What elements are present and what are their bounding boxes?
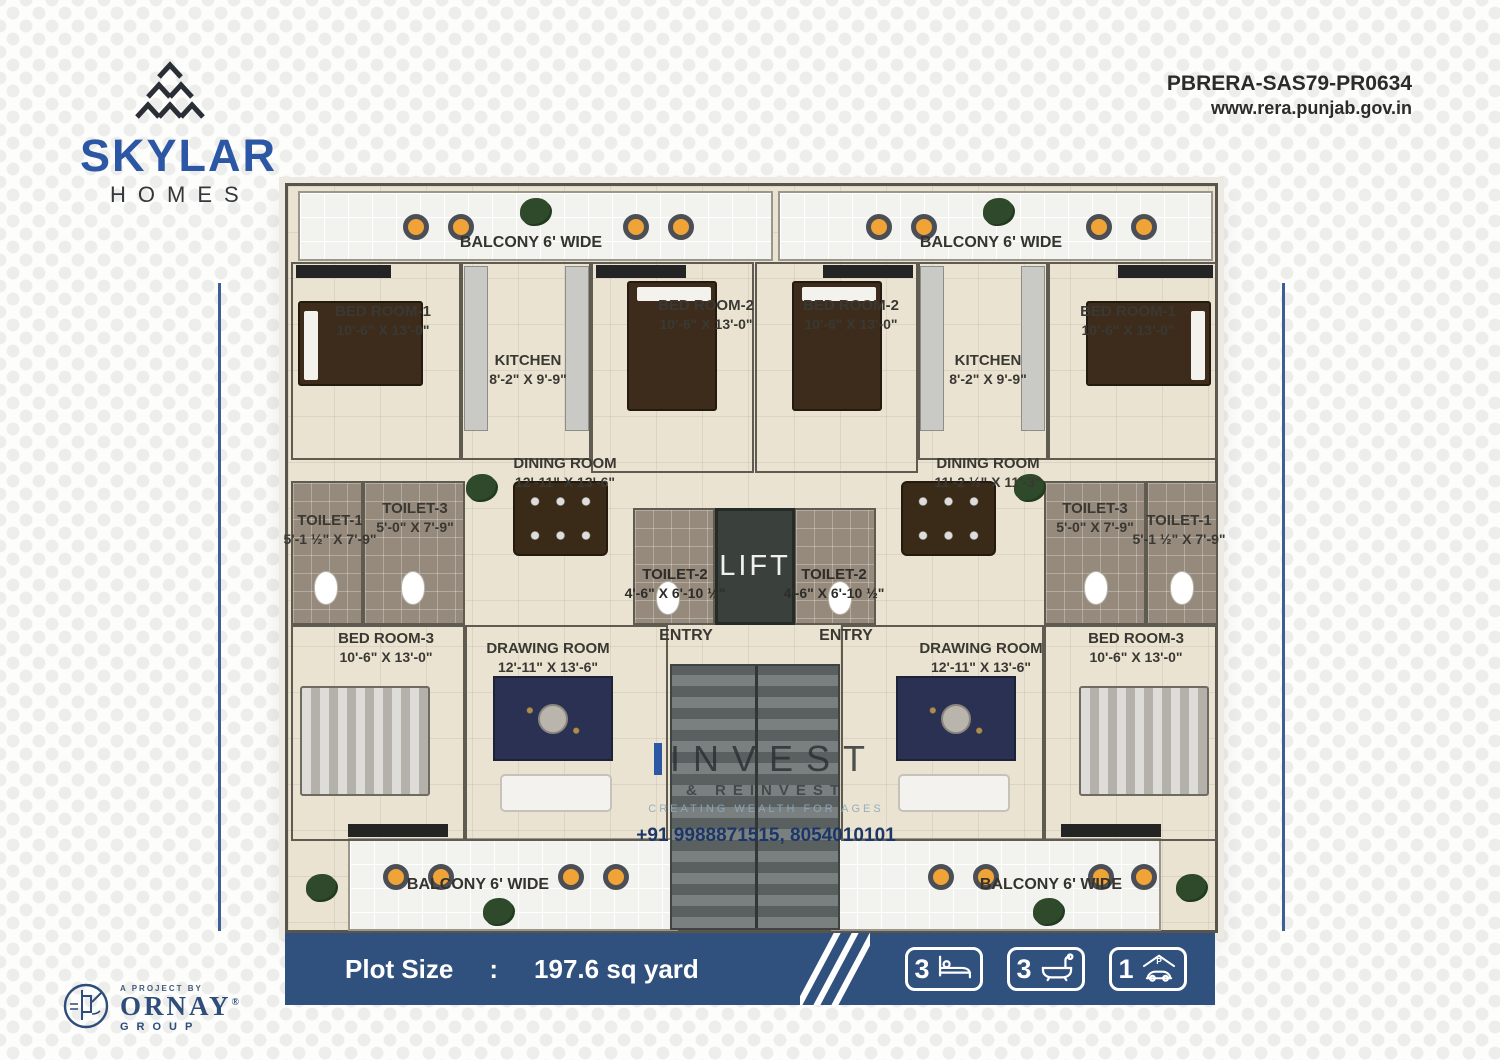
balcony-chair: [866, 214, 892, 240]
plant: [306, 874, 336, 900]
label-bedroom1-right: BED ROOM-1 10'-6" X 13'-0": [1080, 303, 1176, 339]
room-size: 12'-11" X 13'-6": [486, 659, 609, 677]
room-name: DRAWING ROOM: [919, 640, 1042, 659]
invest-watermark: INVEST & REINVEST CREATING WEALTH FOR AG…: [596, 738, 936, 847]
bedrooms-count: 3: [914, 954, 929, 985]
room-size: 5'-0" X 7'-9": [376, 519, 454, 537]
watermark-reinvest: & REINVEST: [596, 782, 936, 799]
toilet-fixture: [314, 571, 338, 605]
room-name: KITCHEN: [949, 352, 1027, 371]
toilet-fixture: [1170, 571, 1194, 605]
bed-bedroom3-left: [300, 686, 430, 796]
room-name: TOILET-1: [283, 512, 376, 531]
toilet-fixture: [1084, 571, 1108, 605]
rera-block: PBRERA-SAS79-PR0634 www.rera.punjab.gov.…: [1167, 72, 1412, 119]
balcony-chair: [558, 864, 584, 890]
entry-label-left: ENTRY: [659, 627, 713, 645]
registered-mark: ®: [232, 997, 242, 1008]
bathrooms-badge: 3: [1007, 947, 1085, 991]
label-toilet1-left: TOILET-1 5'-1 ½" X 7'-9": [283, 512, 376, 548]
label-bedroom2-left: BED ROOM-2 10'-6" X 13'-0": [658, 297, 754, 333]
label-bedroom2-right: BED ROOM-2 10'-6" X 13'-0": [803, 297, 899, 333]
room-size: 10'-6" X 13'-0": [1080, 322, 1176, 340]
plant: [1176, 874, 1206, 900]
room-name: TOILET-3: [1056, 500, 1134, 519]
watermark-phone: +91 9988871515, 8054010101: [596, 825, 936, 847]
room-name: BED ROOM-1: [335, 303, 431, 322]
room-size: 5'-1 ½" X 7'-9": [1132, 531, 1225, 549]
brand-name: SKYLAR: [80, 130, 277, 182]
plot-size-separator: :: [489, 954, 498, 985]
room-size: 10'-6" X 13'-0": [658, 316, 754, 334]
svg-text:P: P: [1156, 956, 1162, 966]
ornay-logo-icon: [62, 982, 110, 1035]
watermark-line1: INVEST: [596, 738, 936, 780]
room-name: DINING ROOM: [513, 455, 616, 474]
room-name: BED ROOM-1: [1080, 303, 1176, 322]
label-toilet2-right: TOILET-2 4'-6" X 6'-10 ½": [784, 566, 885, 602]
bathrooms-count: 3: [1016, 954, 1031, 985]
watermark-invest: INVEST: [670, 738, 878, 780]
room-name: DRAWING ROOM: [486, 640, 609, 659]
label-kitchen-left: KITCHEN 8'-2" X 9'-9": [489, 352, 567, 388]
room-name: TOILET-2: [625, 566, 726, 585]
floor-plan: LIFT: [285, 183, 1218, 933]
room-size: 10'-6" X 13'-0": [335, 322, 431, 340]
balcony-label-bottom-right: BALCONY 6' WIDE: [980, 876, 1122, 894]
parking-count: 1: [1118, 954, 1133, 985]
ornay-block: A PROJECT BY ORNAY® GROUP: [62, 982, 242, 1035]
balcony-chair: [603, 864, 629, 890]
kitchen-counter: [565, 266, 589, 431]
footer-bar: Plot Size : 197.6 sq yard 3: [285, 933, 1215, 1005]
room-name: BED ROOM-2: [803, 297, 899, 316]
label-bedroom3-left: BED ROOM-3 10'-6" X 13'-0": [338, 630, 434, 666]
coffee-table-left: [538, 704, 568, 734]
label-drawing-right: DRAWING ROOM 12'-11" X 13'-6": [919, 640, 1042, 676]
plant: [466, 474, 496, 500]
room-size: 10'-6" X 13'-0": [1088, 649, 1184, 667]
right-accent-line: [1282, 283, 1285, 931]
room-name: KITCHEN: [489, 352, 567, 371]
watermark-bar: [654, 743, 662, 775]
wardrobe: [348, 824, 448, 837]
brand-subtitle: HOMES: [110, 182, 251, 208]
wardrobe: [1061, 824, 1161, 837]
room-name: BED ROOM-2: [658, 297, 754, 316]
label-toilet3-right: TOILET-3 5'-0" X 7'-9": [1056, 500, 1134, 536]
balcony-label-bottom-left: BALCONY 6' WIDE: [407, 876, 549, 894]
rera-website: www.rera.punjab.gov.in: [1167, 98, 1412, 119]
ornay-name-text: ORNAY: [120, 991, 232, 1021]
room-name: TOILET-1: [1132, 512, 1225, 531]
room-size: 10'-6" X 13'-0": [803, 316, 899, 334]
balcony-chair: [383, 864, 409, 890]
room-size: 12'-11" X 13'-6": [513, 474, 616, 492]
label-kitchen-right: KITCHEN 8'-2" X 9'-9": [949, 352, 1027, 388]
balcony-chair: [668, 214, 694, 240]
plot-size-label: Plot Size: [345, 954, 453, 985]
coffee-table-right: [941, 704, 971, 734]
room-name: BED ROOM-3: [338, 630, 434, 649]
ornay-text: A PROJECT BY ORNAY® GROUP: [120, 984, 242, 1033]
room-size: 12'-11" X 13'-6": [919, 659, 1042, 677]
bed-icon: [936, 953, 974, 986]
parking-badge: 1 P: [1109, 947, 1187, 991]
bedrooms-badge: 3: [905, 947, 983, 991]
entry-label-right: ENTRY: [819, 627, 873, 645]
balcony-label-top-left: BALCONY 6' WIDE: [460, 234, 602, 252]
plot-size-value: 197.6 sq yard: [534, 954, 699, 985]
balcony-chair: [403, 214, 429, 240]
room-name: BED ROOM-3: [1088, 630, 1184, 649]
room-size: 11'-2 ½" X 11'-3": [934, 474, 1041, 492]
watermark-tagline: CREATING WEALTH FOR AGES: [596, 803, 936, 815]
skylar-logo-icon: [120, 58, 220, 131]
room-name: TOILET-3: [376, 500, 454, 519]
label-dining-left: DINING ROOM 12'-11" X 13'-6": [513, 455, 616, 491]
balcony-chair: [623, 214, 649, 240]
parking-icon: P: [1140, 952, 1178, 987]
footer-stripes: [800, 933, 870, 1005]
plot-size: Plot Size : 197.6 sq yard: [345, 954, 699, 985]
bed-bedroom3-right: [1079, 686, 1209, 796]
lift-label: LIFT: [719, 550, 791, 583]
ornay-name: ORNAY®: [120, 993, 242, 1020]
room-size: 4'-6" X 6'-10 ½": [625, 585, 726, 603]
flyer-canvas: SKYLAR HOMES PBRERA-SAS79-PR0634 www.rer…: [0, 0, 1500, 1060]
label-toilet1-right: TOILET-1 5'-1 ½" X 7'-9": [1132, 512, 1225, 548]
ornay-group-label: GROUP: [120, 1021, 242, 1033]
wardrobe: [596, 265, 686, 278]
balcony-label-top-right: BALCONY 6' WIDE: [920, 234, 1062, 252]
room-size: 8'-2" X 9'-9": [949, 371, 1027, 389]
label-drawing-left: DRAWING ROOM 12'-11" X 13'-6": [486, 640, 609, 676]
room-name: DINING ROOM: [934, 455, 1041, 474]
kitchen-counter: [464, 266, 488, 431]
label-toilet2-left: TOILET-2 4'-6" X 6'-10 ½": [625, 566, 726, 602]
label-dining-right: DINING ROOM 11'-2 ½" X 11'-3": [934, 455, 1041, 491]
room-size: 5'-0" X 7'-9": [1056, 519, 1134, 537]
room-size: 5'-1 ½" X 7'-9": [283, 531, 376, 549]
kitchen-counter: [1021, 266, 1045, 431]
balcony-chair: [1131, 864, 1157, 890]
balcony-chair: [928, 864, 954, 890]
room-name: TOILET-2: [784, 566, 885, 585]
amenity-badges: 3 3: [905, 947, 1187, 991]
kitchen-counter: [920, 266, 944, 431]
bath-icon: [1038, 952, 1076, 987]
label-toilet3-left: TOILET-3 5'-0" X 7'-9": [376, 500, 454, 536]
label-bedroom1-left: BED ROOM-1 10'-6" X 13'-0": [335, 303, 431, 339]
room-size: 8'-2" X 9'-9": [489, 371, 567, 389]
rera-id: PBRERA-SAS79-PR0634: [1167, 72, 1412, 96]
wardrobe: [1118, 265, 1213, 278]
balcony-chair: [1086, 214, 1112, 240]
wardrobe: [296, 265, 391, 278]
toilet-fixture: [401, 571, 425, 605]
dining-table-right: [901, 481, 996, 556]
balcony-chair: [1131, 214, 1157, 240]
room-size: 4'-6" X 6'-10 ½": [784, 585, 885, 603]
left-accent-line: [218, 283, 221, 931]
room-size: 10'-6" X 13'-0": [338, 649, 434, 667]
wardrobe: [823, 265, 913, 278]
dining-table-left: [513, 481, 608, 556]
label-bedroom3-right: BED ROOM-3 10'-6" X 13'-0": [1088, 630, 1184, 666]
